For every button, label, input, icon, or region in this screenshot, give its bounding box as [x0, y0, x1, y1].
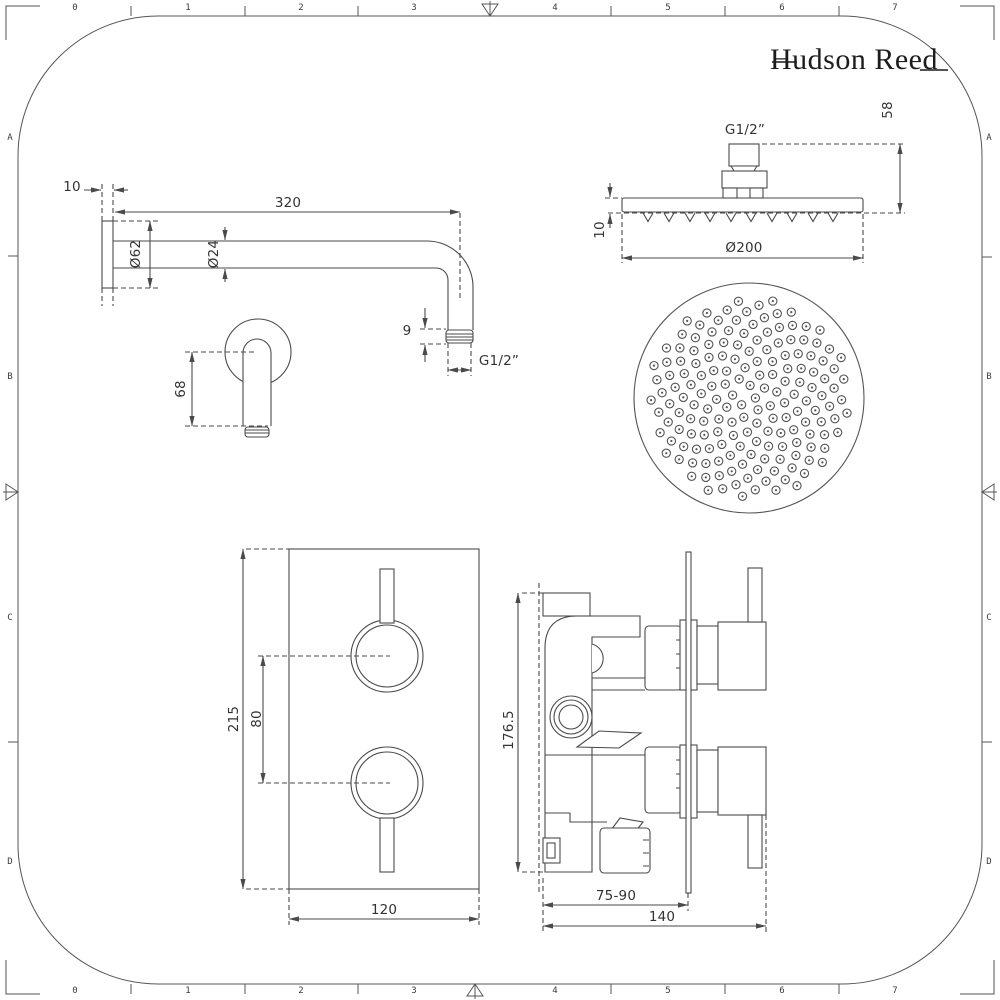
ruler-top-5: 5 — [665, 3, 670, 13]
ruler-top-6: 6 — [779, 3, 784, 13]
shower-arm-view — [84, 184, 473, 376]
dim-arm-flange-dia: Ø62 — [128, 240, 144, 268]
technical-drawing-sheet: Hudson Reed 10 320 Ø62 Ø24 9 G1/2” 68 G1… — [0, 0, 1000, 1000]
ruler-left-D: D — [7, 857, 12, 867]
ruler-bottom-0: 0 — [72, 986, 77, 996]
ruler-top-2: 2 — [298, 3, 303, 13]
shower-head-face-view — [634, 283, 864, 513]
dim-head-dia: Ø200 — [725, 240, 762, 256]
drawing-canvas — [0, 0, 1000, 1000]
dim-valve-plate-width: 120 — [371, 902, 397, 918]
brand-logo: Hudson Reed — [770, 43, 938, 77]
wall-outlet-view — [185, 319, 291, 437]
valve-front-view — [243, 549, 479, 925]
ruler-left-C: C — [7, 613, 12, 623]
dim-arm-length: 320 — [275, 195, 301, 211]
dim-outlet-height: 68 — [173, 380, 189, 398]
ruler-left-A: A — [7, 133, 12, 143]
label-head-thread: G1/2” — [725, 122, 765, 138]
ruler-bottom-4: 4 — [552, 986, 557, 996]
dim-valve-knob-spacing: 80 — [249, 710, 265, 728]
dim-arm-thread-length: 9 — [403, 323, 412, 339]
ruler-top-0: 0 — [72, 3, 77, 13]
dim-valve-wall-depth: 75-90 — [596, 888, 636, 904]
ruler-top-3: 3 — [411, 3, 416, 13]
ruler-top-4: 4 — [552, 3, 557, 13]
label-arm-thread: G1/2” — [479, 353, 519, 369]
dim-head-thickness: 10 — [592, 221, 608, 239]
dim-valve-body-height: 176.5 — [501, 710, 517, 750]
ruler-right-B: B — [986, 372, 991, 382]
nozzle-profile-marks — [643, 213, 838, 222]
ruler-top-1: 1 — [185, 3, 190, 13]
ruler-bottom-7: 7 — [892, 986, 897, 996]
ruler-left-B: B — [7, 372, 12, 382]
dim-arm-dia: Ø24 — [206, 240, 222, 268]
ruler-bottom-6: 6 — [779, 986, 784, 996]
valve-side-view — [518, 552, 766, 932]
ruler-top-7: 7 — [892, 3, 897, 13]
ruler-bottom-2: 2 — [298, 986, 303, 996]
dim-valve-total-depth: 140 — [649, 909, 675, 925]
ruler-bottom-5: 5 — [665, 986, 670, 996]
dim-arm-wall-offset: 10 — [63, 179, 81, 195]
ruler-bottom-3: 3 — [411, 986, 416, 996]
dim-head-connector-height: 58 — [880, 101, 896, 119]
sheet-frame — [3, 1, 997, 999]
dim-valve-plate-height: 215 — [226, 706, 242, 732]
ruler-right-D: D — [986, 857, 991, 867]
ruler-right-C: C — [986, 613, 991, 623]
nozzle-field — [647, 297, 851, 500]
ruler-right-A: A — [986, 133, 991, 143]
ruler-bottom-1: 1 — [185, 986, 190, 996]
